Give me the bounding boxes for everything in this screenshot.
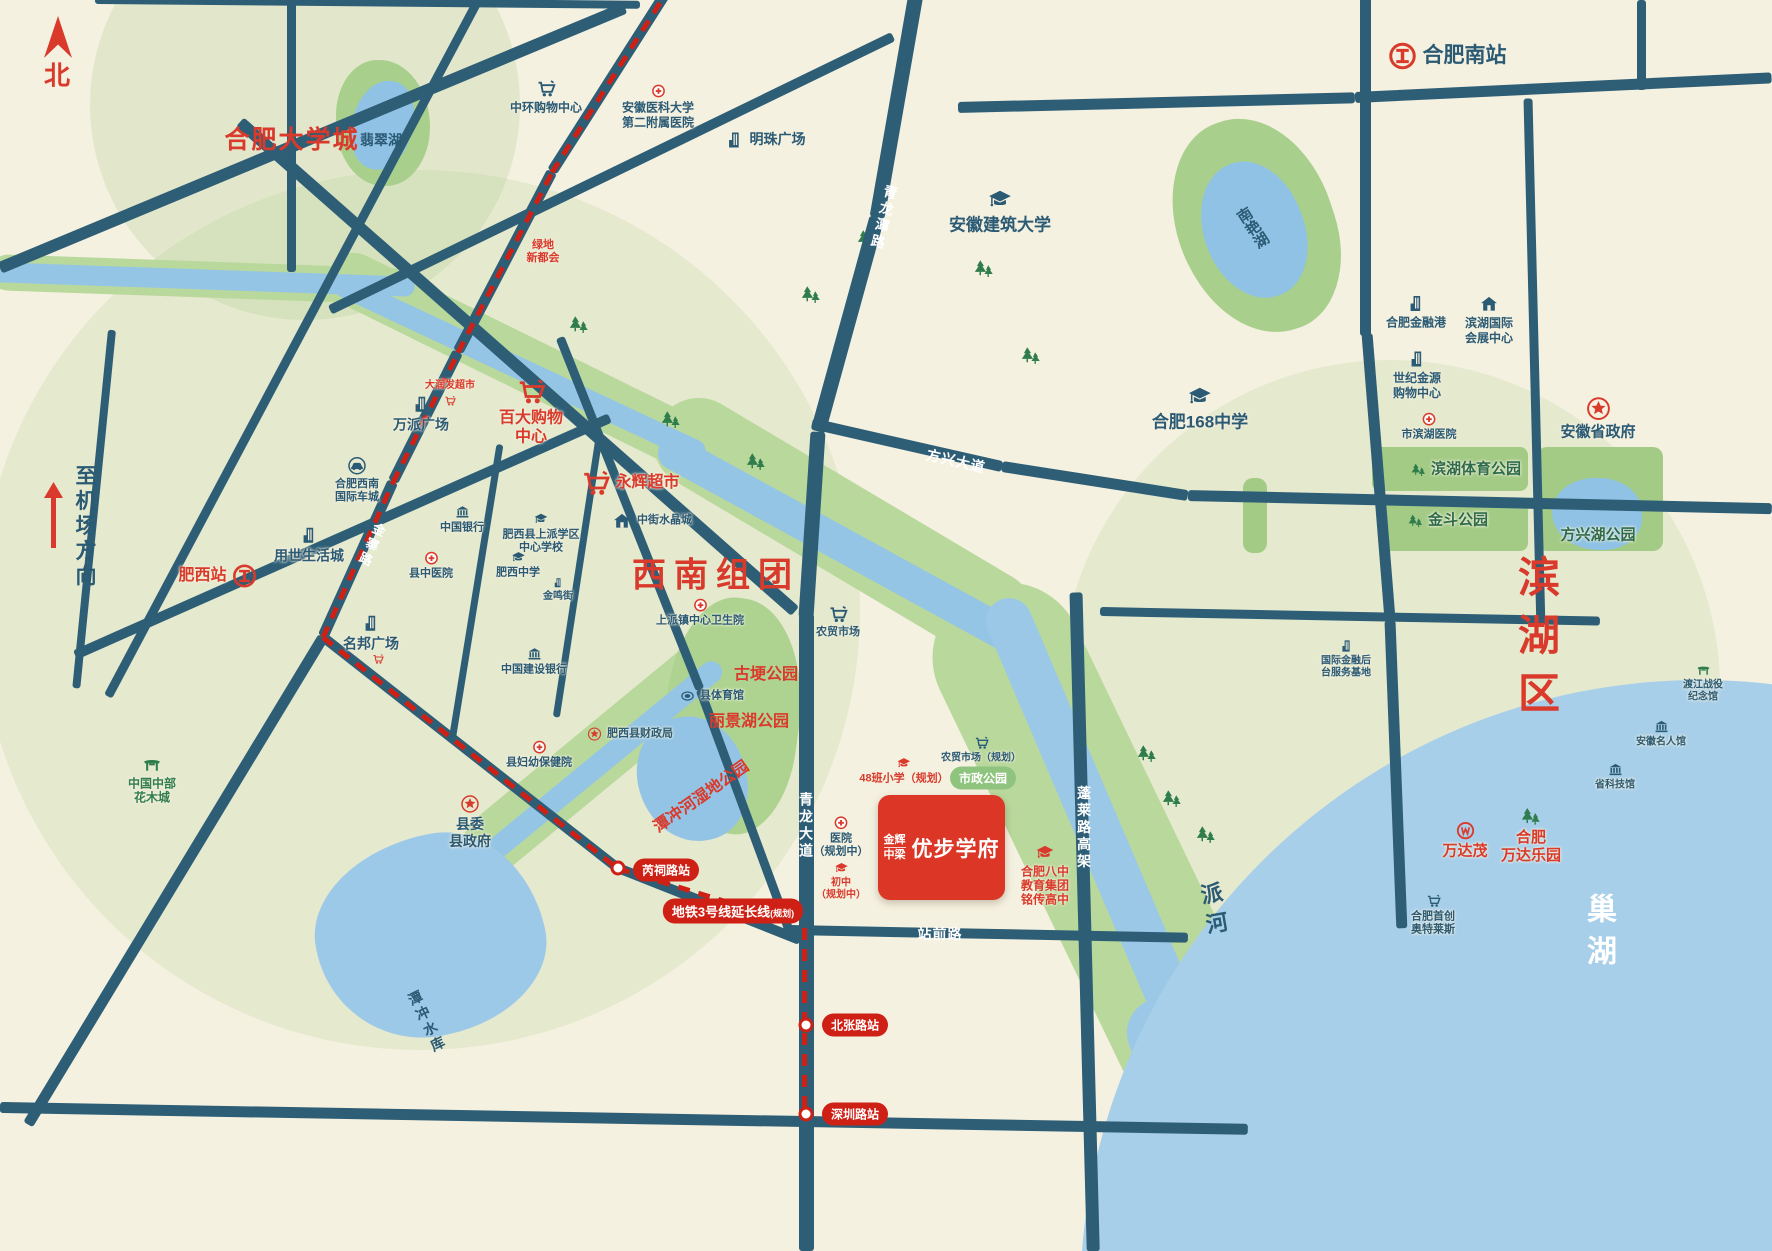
poi-label: 合肥首创 <box>1411 910 1455 924</box>
poi-label: 农贸市场 <box>816 626 860 640</box>
poi-label: 上派镇中心卫生院 <box>656 615 744 629</box>
project-brand-top: 金辉 <box>884 833 906 848</box>
trees-icon <box>1408 514 1423 529</box>
airport-arrow-icon <box>51 496 56 548</box>
project-brand-bottom: 中梁 <box>884 848 906 862</box>
star-icon <box>460 794 480 814</box>
poi-hefei-south-station: 合肥南站 <box>1388 41 1507 71</box>
poi-label: 中国中部 <box>128 777 176 792</box>
road <box>1360 0 1371 336</box>
trees-icon <box>1521 807 1541 827</box>
poi-feixi-station: 肥西站 <box>178 563 257 589</box>
metro-line-status: (规划) <box>770 909 794 919</box>
poi-label: 用世生活城 <box>274 547 344 565</box>
building-icon <box>1407 349 1427 369</box>
building-icon <box>1339 639 1354 654</box>
graduation-cap-icon <box>987 186 1013 212</box>
road <box>958 92 1355 113</box>
hospital-icon <box>650 84 665 99</box>
cart-icon <box>516 377 546 407</box>
poi-shiji-jinyuan-mall: 世纪金源 购物中心 <box>1393 349 1441 401</box>
poi-dujiang-memorial: 渡江战役 纪念馆 <box>1683 663 1723 704</box>
poi-label: 中街水晶城 <box>637 514 692 528</box>
poi-hefei-168-school: 合肥168中学 <box>1152 383 1248 432</box>
gate-icon <box>142 755 162 775</box>
trees-icon <box>1137 744 1157 764</box>
poi-label: 百大购物 <box>499 409 563 429</box>
poi-label: 中国银行 <box>440 522 484 536</box>
poi-label: 万达茂 <box>1442 843 1487 862</box>
poi-label: 合肥 <box>1516 829 1546 848</box>
poi-label: 肥西站 <box>178 566 226 586</box>
poi-label: 肥西县财政局 <box>607 727 673 741</box>
poi-label: 金鸣街 <box>543 591 573 604</box>
metro-station-beizhang: 北张路站 <box>822 1014 888 1037</box>
poi-label: 第二附属医院 <box>622 116 694 131</box>
poi-county-gym: 县体育馆 <box>680 689 744 704</box>
project-name: 优步学府 <box>912 833 1000 863</box>
poi-label: 肥西中学 <box>496 567 540 581</box>
road-label-zhanqian: 站前路 <box>918 924 963 944</box>
poi-label: 中国建设银行 <box>501 664 567 678</box>
poi-label: 医院 <box>830 832 852 846</box>
poi-label: 县妇幼保健院 <box>506 757 572 771</box>
building-icon <box>1479 294 1499 314</box>
gate-icon <box>1696 663 1711 678</box>
road <box>0 1102 1248 1135</box>
star-icon <box>1585 396 1611 422</box>
railway-station-icon <box>1388 41 1418 71</box>
poi-wanda-mao: 万达茂 <box>1442 821 1487 862</box>
graduation-cap-icon <box>511 550 526 565</box>
trees-icon <box>1411 463 1426 478</box>
north-arrow-icon <box>44 16 72 58</box>
metro-station-shenzhen: 深圳路站 <box>822 1103 888 1126</box>
airport-direction-label: 至机场方向 <box>69 465 99 590</box>
metro-station-dot <box>799 1107 814 1122</box>
road <box>1355 72 1772 103</box>
poi-shouchuang-outlets: 合肥首创 奥特莱斯 <box>1411 893 1455 937</box>
road <box>1637 0 1646 90</box>
poi-label: 农贸市场（规划） <box>941 752 1021 765</box>
poi-maternal-hospital: 县妇幼保健院 <box>506 740 572 771</box>
graduation-cap-icon <box>897 756 912 771</box>
poi-label: 48班小学（规划） <box>859 773 948 787</box>
project-brand: 金辉 中梁 <box>884 833 906 863</box>
stadium-icon <box>680 689 695 704</box>
hospital-icon <box>532 740 547 755</box>
poi-anhui-jianzhu-univ: 安徽建筑大学 <box>949 186 1051 235</box>
poi-label: 绿地 <box>532 239 554 253</box>
green-strip <box>1243 478 1267 553</box>
poi-binhu-expo-center: 滨湖国际 会展中心 <box>1465 294 1513 346</box>
poi-label: 省科技馆 <box>1595 779 1635 792</box>
poi-mingbang-plaza: 名邦广场 <box>343 613 399 653</box>
poi-label: 永辉超市 <box>615 473 679 493</box>
park-label: 金斗公园 <box>1428 512 1488 531</box>
park-jindou: 金斗公园 <box>1408 512 1488 531</box>
poi-flower-city: 中国中部 花木城 <box>128 755 176 806</box>
cart-icon <box>536 79 556 99</box>
graduation-cap-icon <box>1035 843 1055 863</box>
poi-label: 万派广场 <box>393 416 449 434</box>
poi-label: 纪念馆 <box>1688 691 1718 704</box>
poi-label: 世纪金源 <box>1393 371 1441 386</box>
park-shizheng: 市政公园 <box>950 767 1016 790</box>
poi-wanda-park: 合肥 万达乐园 <box>1501 807 1561 866</box>
poi-ccb-bank: 中国建设银行 <box>501 647 567 678</box>
poi-label: 安徽医科大学 <box>622 101 694 116</box>
poi-label: 大润发超市 <box>425 380 475 393</box>
poi-label: 万达乐园 <box>1501 847 1561 866</box>
poi-label: 名邦广场 <box>343 635 399 653</box>
poi-label: 合肥金融港 <box>1386 316 1446 331</box>
poi-zhonghuan-mall: 中环购物中心 <box>510 79 582 116</box>
building-icon <box>299 525 319 545</box>
hospital-icon <box>834 815 849 830</box>
poi-label: 铭传高中 <box>1021 893 1069 908</box>
area-southwest-group: 西南组团 <box>632 548 800 597</box>
poi-label: （规划中） <box>814 845 869 859</box>
metro-line-name: 地铁3号线延长线 <box>672 905 770 920</box>
building-icon <box>725 130 745 150</box>
poi-label: 合肥西南 <box>335 478 379 492</box>
cart-icon <box>974 735 989 750</box>
cart-icon <box>372 653 384 665</box>
trees-icon <box>746 452 766 472</box>
cart-icon <box>580 468 610 498</box>
feicui-lake-label: 翡翠湖 <box>360 130 402 150</box>
house-icon <box>612 511 632 531</box>
trees-icon <box>661 410 681 430</box>
star-icon <box>587 727 602 742</box>
railway-station-icon <box>232 563 258 589</box>
park-label: 方兴湖公园 <box>1560 527 1635 546</box>
bank-icon <box>527 647 542 662</box>
graduation-cap-icon <box>534 511 549 526</box>
poi-science-museum: 省科技馆 <box>1595 762 1635 792</box>
wanda-logo-icon <box>1455 821 1475 841</box>
poi-finance-backoffice-base: 国际金融后 台服务基地 <box>1321 639 1371 680</box>
poi-label: 会展中心 <box>1465 331 1513 346</box>
poi-yongshi-life-city: 用世生活城 <box>274 525 344 565</box>
poi-label: 合肥南站 <box>1423 43 1507 69</box>
poi-label: 安徽省政府 <box>1560 424 1635 443</box>
poi-label: 中环购物中心 <box>510 101 582 116</box>
poi-label: 县政府 <box>449 833 491 851</box>
poi-zhongjie-crystal-city: 中街水晶城 <box>612 511 692 531</box>
trees-icon <box>1162 789 1182 809</box>
poi-label: 合肥八中 <box>1021 865 1069 880</box>
poi-label: 奥特莱斯 <box>1411 923 1455 937</box>
bank-icon <box>1608 762 1623 777</box>
park-fangxinghu: 方兴湖公园 <box>1560 527 1635 546</box>
bank-icon <box>1654 719 1669 734</box>
park-binhu-sports: 滨湖体育公园 <box>1411 461 1521 480</box>
poi-label: 安徽名人馆 <box>1636 736 1686 749</box>
graduation-cap-icon <box>1187 383 1213 409</box>
poi-label: 教育集团 <box>1021 879 1069 894</box>
poi-county-tcm-hospital: 县中医院 <box>409 551 453 582</box>
poi-jinming-street: 金鸣街 <box>543 577 573 604</box>
metro-station-dot <box>799 1018 814 1033</box>
road-label-penglai: 蓬莱路高架 <box>1074 786 1094 871</box>
map-canvas: 青龙潭路 金寨路 方兴大道 青龙大道 蓬莱路高架 站前路 北 至机场方向 合肥大… <box>0 0 1772 1251</box>
hospital-icon <box>424 551 439 566</box>
chao-lake-label: 巢湖 <box>1576 893 1620 977</box>
cart-icon <box>1426 893 1441 908</box>
poi-mingzhu-plaza: 明珠广场 <box>725 130 806 150</box>
project-marker: 金辉 中梁 优步学府 <box>878 795 1005 900</box>
poi-hefei-no8-school: 合肥八中 教育集团 铭传高中 <box>1021 843 1069 908</box>
building-icon <box>361 613 381 633</box>
poi-label: 花木城 <box>134 791 170 806</box>
trees-icon <box>1021 346 1041 366</box>
cart-icon <box>444 394 456 406</box>
metro-line-label: 地铁3号线延长线(规划) <box>663 899 803 924</box>
poi-anhui-celebrity-hall: 安徽名人馆 <box>1636 719 1686 749</box>
poi-planned-market: 农贸市场（规划） <box>941 735 1021 765</box>
poi-label: 合肥168中学 <box>1152 411 1248 432</box>
poi-label: 中心 <box>515 428 547 448</box>
poi-anyi-hospital2: 安徽医科大学 第二附属医院 <box>622 84 694 131</box>
trees-icon <box>801 285 821 305</box>
park-gugeng: 古埂公园 <box>734 660 798 684</box>
poi-shangpai-school: 肥西县上派学区 中心学校 <box>503 511 580 555</box>
poi-farmers-market: 农贸市场 <box>816 604 860 640</box>
poi-anhui-gov: 安徽省政府 <box>1560 396 1635 443</box>
poi-label: 新都会 <box>527 252 560 266</box>
poi-label: 肥西县上派学区 <box>503 528 580 542</box>
building-icon <box>552 577 564 589</box>
trees-icon <box>974 259 994 279</box>
hospital-icon <box>693 598 708 613</box>
north-label: 北 <box>44 56 70 93</box>
park-label: 滨湖体育公园 <box>1431 461 1521 480</box>
poi-shangpai-health-center: 上派镇中心卫生院 <box>656 598 744 629</box>
poi-label: 明珠广场 <box>750 131 806 149</box>
park-lijinghu: 丽景湖公园 <box>709 707 789 731</box>
poi-label: 县体育馆 <box>700 689 744 703</box>
poi-label: 安徽建筑大学 <box>949 214 1051 235</box>
trees-icon <box>1196 825 1216 845</box>
poi-binhu-hospital: 市滨湖医院 <box>1402 412 1457 443</box>
trees-icon <box>569 315 589 335</box>
graduation-cap-icon <box>834 861 849 876</box>
poi-label: 滨湖国际 <box>1465 316 1513 331</box>
poi-baida-mall: 百大购物 中心 <box>499 377 563 448</box>
poi-planned-primary-school: 48班小学（规划） <box>859 756 948 787</box>
poi-county-gov: 县委 县政府 <box>449 794 491 850</box>
building-icon <box>1406 294 1426 314</box>
car-icon <box>347 456 367 476</box>
poi-hefei-financial-port: 合肥金融港 <box>1386 294 1446 331</box>
metro-station-dot <box>611 861 626 876</box>
poi-rtmart: 大润发超市 <box>425 380 475 407</box>
poi-bank-of-china: 中国银行 <box>440 505 484 536</box>
poi-planned-hospital: 医院 （规划中） <box>814 815 869 859</box>
poi-lvdi-xinduhui: 绿地 新都会 <box>527 239 560 266</box>
cart-icon <box>828 604 848 624</box>
poi-label: 县中医院 <box>409 568 453 582</box>
metro-station-ruici: 芮祠路站 <box>633 859 699 882</box>
bank-icon <box>455 505 470 520</box>
poi-label: 市滨湖医院 <box>1402 429 1457 443</box>
poi-label: 县委 <box>456 816 484 834</box>
poi-label: 国际车城 <box>335 491 379 505</box>
poi-finance-bureau: 肥西县财政局 <box>587 727 673 742</box>
poi-yonghui-market: 永辉超市 <box>580 468 679 498</box>
poi-feixi-middle-school: 肥西中学 <box>496 550 540 581</box>
area-university-town: 合肥大学城 <box>224 120 359 156</box>
poi-label: 购物中心 <box>1393 386 1441 401</box>
hospital-icon <box>1422 412 1437 427</box>
poi-label: （规划中） <box>816 889 866 902</box>
poi-planned-junior-school: 初中 （规划中） <box>816 861 866 902</box>
poi-label: 台服务基地 <box>1321 667 1371 680</box>
poi-auto-city: 合肥西南 国际车城 <box>335 456 379 505</box>
road-label-fangxing: 方兴大道 <box>925 445 988 478</box>
area-binhu-district: 滨湖区 <box>1506 555 1567 729</box>
